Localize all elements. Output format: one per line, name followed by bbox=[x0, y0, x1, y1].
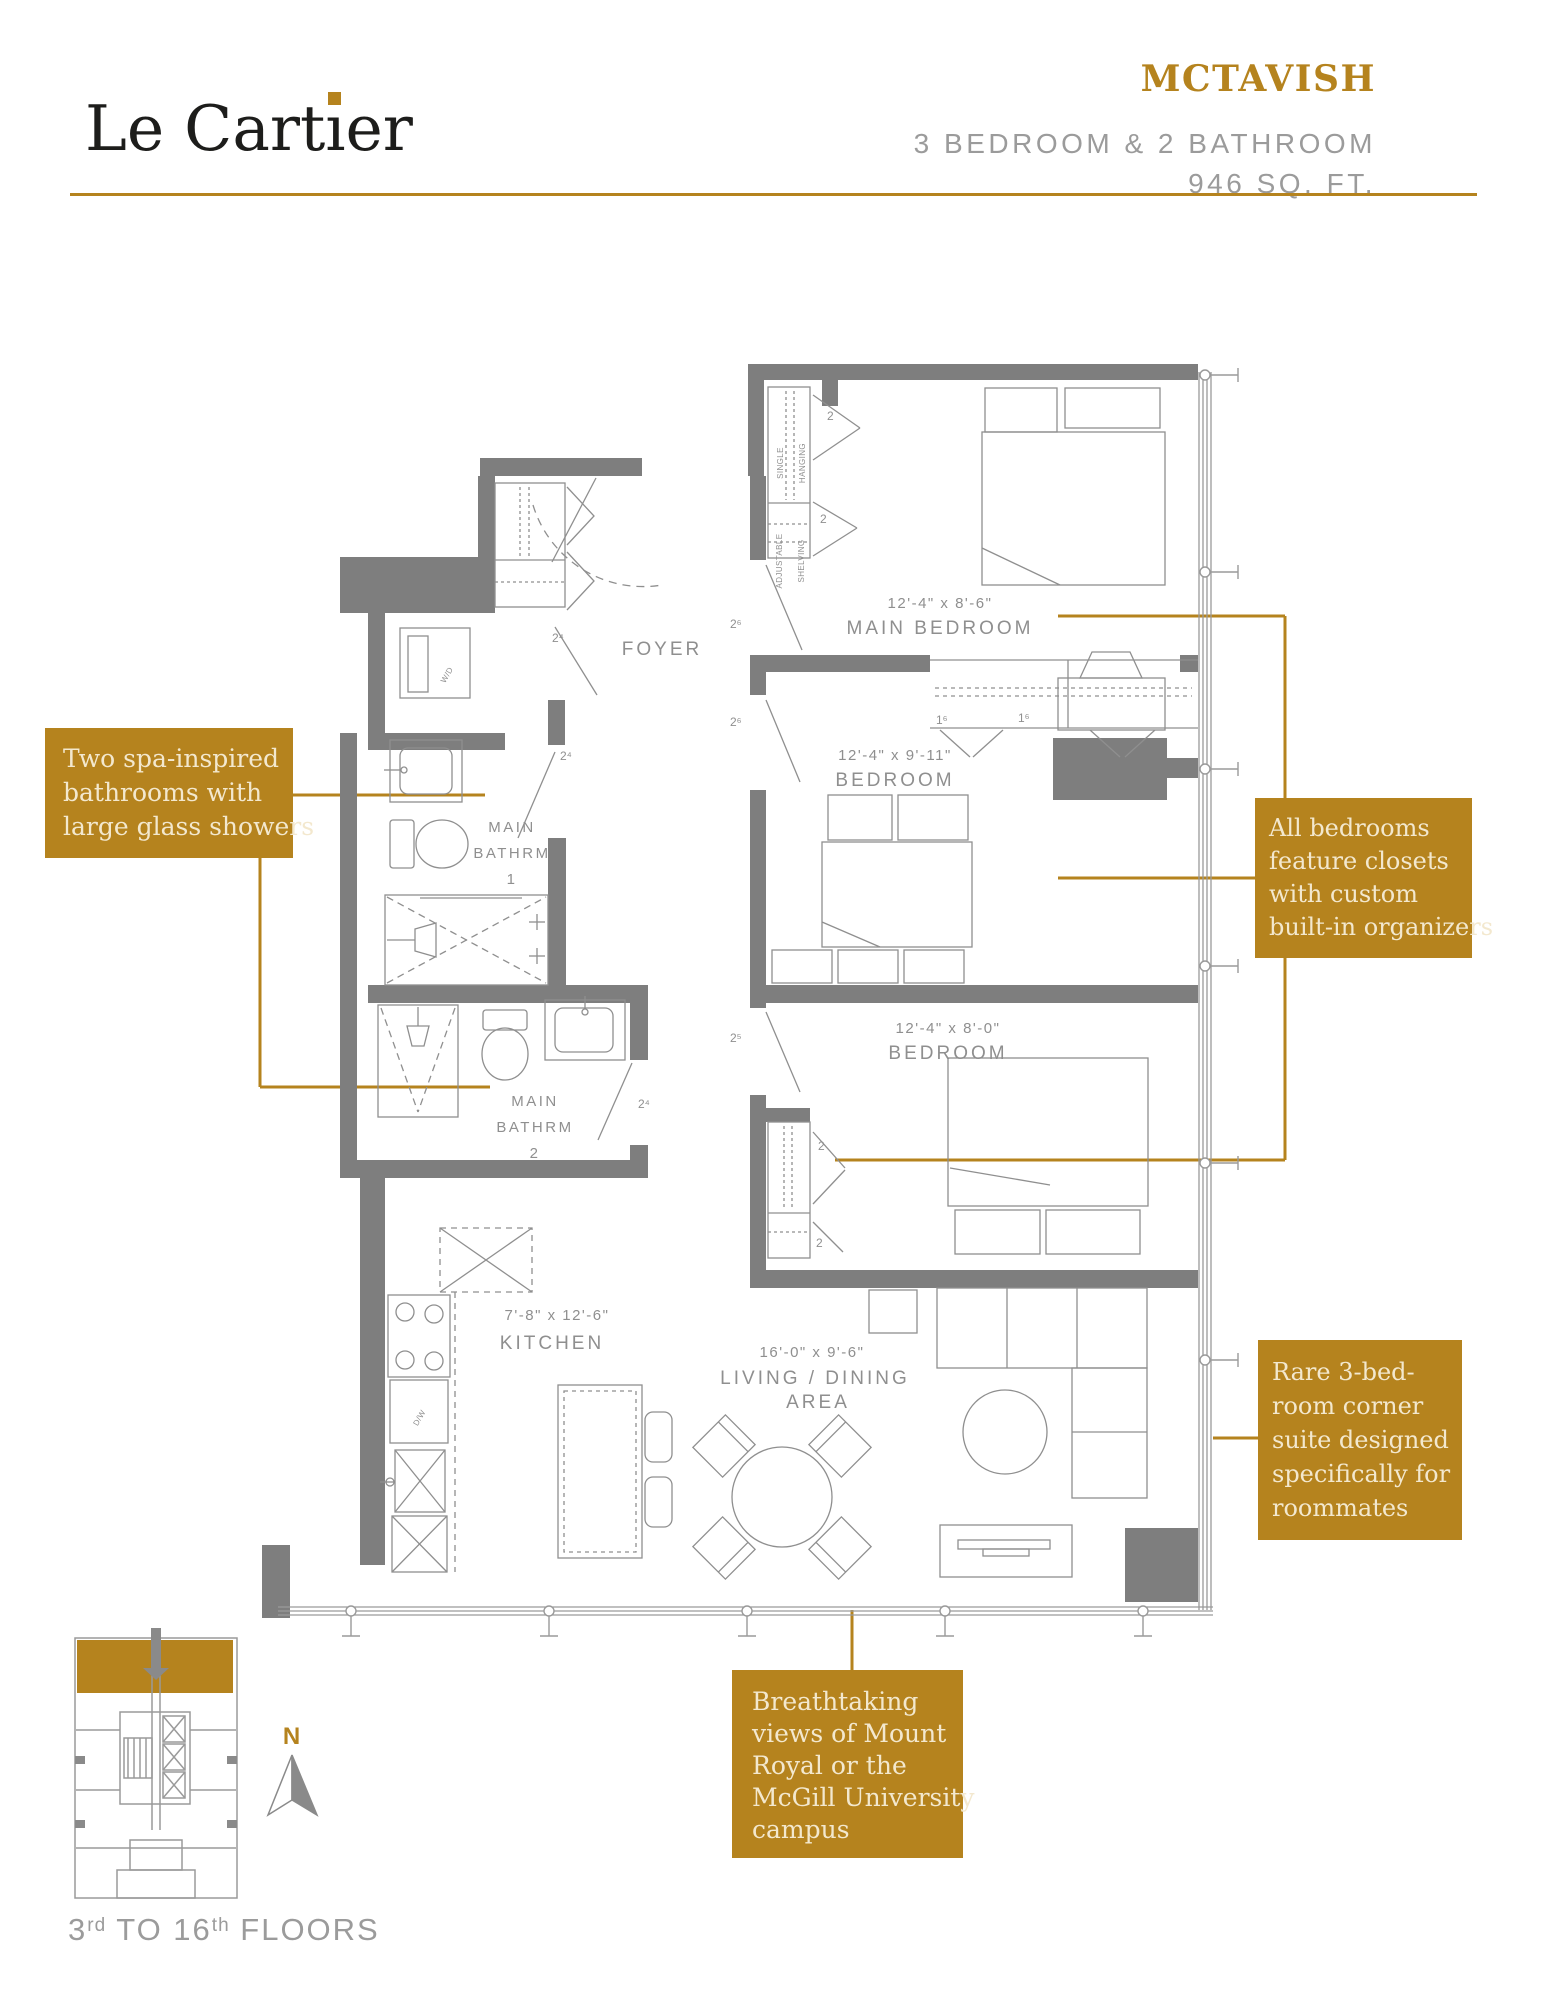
closet-door-label-b: 2 bbox=[820, 512, 827, 526]
bathroom2-label: MAIN BATHRM 2 bbox=[496, 1093, 573, 1162]
svg-text:BATHRM: BATHRM bbox=[496, 1119, 573, 1136]
bedroom2-label: 12'-4" x 9'-11" BEDROOM bbox=[835, 747, 954, 791]
svg-text:7'-8" x 12'-6": 7'-8" x 12'-6" bbox=[505, 1307, 610, 1324]
main-bedroom-label: 12'-4" x 8'-6" MAIN BEDROOM bbox=[847, 595, 1034, 639]
north-arrow-right bbox=[292, 1755, 317, 1815]
callout-line: McGill University bbox=[752, 1782, 963, 1814]
bedroom3-door-label: 2⁵ bbox=[730, 1031, 742, 1045]
floors-mid: TO 16 bbox=[106, 1912, 212, 1947]
closet-door-label-a: 2 bbox=[827, 409, 834, 423]
brand-gold-dot-i: ı bbox=[325, 92, 345, 165]
svg-text:2: 2 bbox=[530, 1145, 541, 1162]
floors-ordinal: rd bbox=[87, 1915, 106, 1936]
bedroom2-fixtures bbox=[766, 652, 1198, 983]
svg-text:1: 1 bbox=[507, 871, 518, 888]
svg-text:12'-4" x 9'-11": 12'-4" x 9'-11" bbox=[838, 747, 952, 764]
callout-line: large glass showers bbox=[63, 810, 293, 844]
closet3-door-label-a: 2 bbox=[818, 1139, 825, 1153]
foyer-fixtures bbox=[495, 478, 662, 610]
callout-corner-suite: Rare 3-bed- room corner suite designed s… bbox=[1258, 1340, 1462, 1540]
floors-word: FLOORS bbox=[230, 1912, 380, 1947]
callout-line: Breathtaking bbox=[752, 1686, 963, 1718]
callout-line: feature closets bbox=[1269, 845, 1472, 878]
floors-range-label: 3rd TO 16th FLOORS bbox=[68, 1912, 380, 1948]
bath2-door-label: 2⁴ bbox=[638, 1097, 650, 1111]
kitchen-fixtures bbox=[380, 1228, 672, 1572]
unit-area-line: 946 SQ. FT. bbox=[914, 164, 1376, 204]
brand-logo: Le Cartıer bbox=[85, 92, 413, 165]
callout-closets: All bedrooms feature closets with custom… bbox=[1255, 798, 1472, 958]
closet2-door-label-b: 1⁶ bbox=[1018, 711, 1030, 725]
callout-line: Rare 3-bed- bbox=[1272, 1355, 1462, 1389]
closet-shelf-label-2: SHELVING bbox=[797, 539, 806, 582]
svg-text:AREA: AREA bbox=[786, 1392, 850, 1413]
brand-text-pre: Le Cart bbox=[85, 92, 325, 165]
main-bedroom-door-label: 2⁶ bbox=[730, 617, 742, 631]
closet2-door-label-a: 1⁶ bbox=[936, 713, 948, 727]
svg-text:12'-4" x 8'-0": 12'-4" x 8'-0" bbox=[896, 1020, 1001, 1037]
dishwasher-label: D/W bbox=[411, 1408, 427, 1427]
floors-ordinal: th bbox=[212, 1915, 230, 1936]
closet-hanging-label-2: HANGING bbox=[798, 443, 807, 483]
callout-line: All bedrooms bbox=[1269, 812, 1472, 845]
floors-number: 3 bbox=[68, 1912, 87, 1947]
bedroom2-door-label: 2⁶ bbox=[730, 715, 742, 729]
living-label: 16'-0" x 9'-6" LIVING / DINING AREA bbox=[720, 1344, 910, 1413]
callout-line: views of Mount bbox=[752, 1718, 963, 1750]
gold-divider-rule bbox=[70, 193, 1477, 196]
closet-hanging-label-1: SINGLE bbox=[776, 447, 785, 479]
callout-line: Royal or the bbox=[752, 1750, 963, 1782]
bath1-door-label: 2⁴ bbox=[560, 749, 572, 763]
callout-line: built-in organizers bbox=[1269, 911, 1472, 944]
bathroom1-label: MAIN BATHRM 1 bbox=[473, 819, 550, 888]
unit-spec-line: 3 BEDROOM & 2 BATHROOM bbox=[914, 124, 1376, 164]
washer-dryer-label: W/D bbox=[439, 666, 455, 685]
callout-line: roommates bbox=[1272, 1491, 1462, 1525]
foyer-label: FOYER bbox=[622, 639, 702, 660]
bathroom1-fixtures bbox=[384, 740, 555, 985]
north-arrow-left bbox=[268, 1755, 292, 1815]
unit-name: MCTAVISH bbox=[1141, 58, 1376, 100]
callout-line: campus bbox=[752, 1814, 963, 1846]
callout-line: with custom bbox=[1269, 878, 1472, 911]
svg-text:LIVING / DINING: LIVING / DINING bbox=[720, 1368, 910, 1389]
laundry-door-label: 2⁴ bbox=[552, 631, 564, 645]
walls bbox=[262, 364, 1198, 1618]
page: { "colors":{"gold":"#B5831E","cream":"#F… bbox=[0, 0, 1545, 2000]
unit-subtitle: 3 BEDROOM & 2 BATHROOM 946 SQ. FT. bbox=[914, 124, 1376, 204]
callout-line: bathrooms with bbox=[63, 776, 293, 810]
north-label: N bbox=[283, 1723, 301, 1750]
key-plan bbox=[75, 1628, 237, 1898]
svg-text:MAIN: MAIN bbox=[488, 819, 536, 836]
north-arrow: N bbox=[268, 1723, 317, 1815]
closet-shelf-label-1: ADJUSTABLE bbox=[775, 534, 784, 589]
callout-line: specifically for bbox=[1272, 1457, 1462, 1491]
bedroom3-label: 12'-4" x 8'-0" BEDROOM bbox=[888, 1020, 1007, 1064]
callout-line: suite designed bbox=[1272, 1423, 1462, 1457]
svg-text:BEDROOM: BEDROOM bbox=[835, 770, 954, 791]
callout-line: room corner bbox=[1272, 1389, 1462, 1423]
living-fixtures bbox=[693, 1288, 1147, 1579]
callout-views: Breathtaking views of Mount Royal or the… bbox=[732, 1670, 963, 1858]
svg-text:16'-0" x 9'-6": 16'-0" x 9'-6" bbox=[760, 1344, 865, 1361]
svg-text:KITCHEN: KITCHEN bbox=[500, 1333, 604, 1354]
svg-text:MAIN BEDROOM: MAIN BEDROOM bbox=[847, 618, 1034, 639]
laundry-closet bbox=[400, 627, 597, 698]
svg-text:BEDROOM: BEDROOM bbox=[888, 1043, 1007, 1064]
callout-line: Two spa-inspired bbox=[63, 742, 293, 776]
brand-text-post: er bbox=[346, 92, 413, 165]
closet3-door-label-b: 2 bbox=[816, 1236, 823, 1250]
svg-text:MAIN: MAIN bbox=[511, 1093, 559, 1110]
svg-text:12'-4" x 8'-6": 12'-4" x 8'-6" bbox=[888, 595, 993, 612]
callout-bathrooms: Two spa-inspired bathrooms with large gl… bbox=[45, 728, 293, 858]
svg-text:BATHRM: BATHRM bbox=[473, 845, 550, 862]
kitchen-label: 7'-8" x 12'-6" KITCHEN bbox=[500, 1307, 610, 1354]
